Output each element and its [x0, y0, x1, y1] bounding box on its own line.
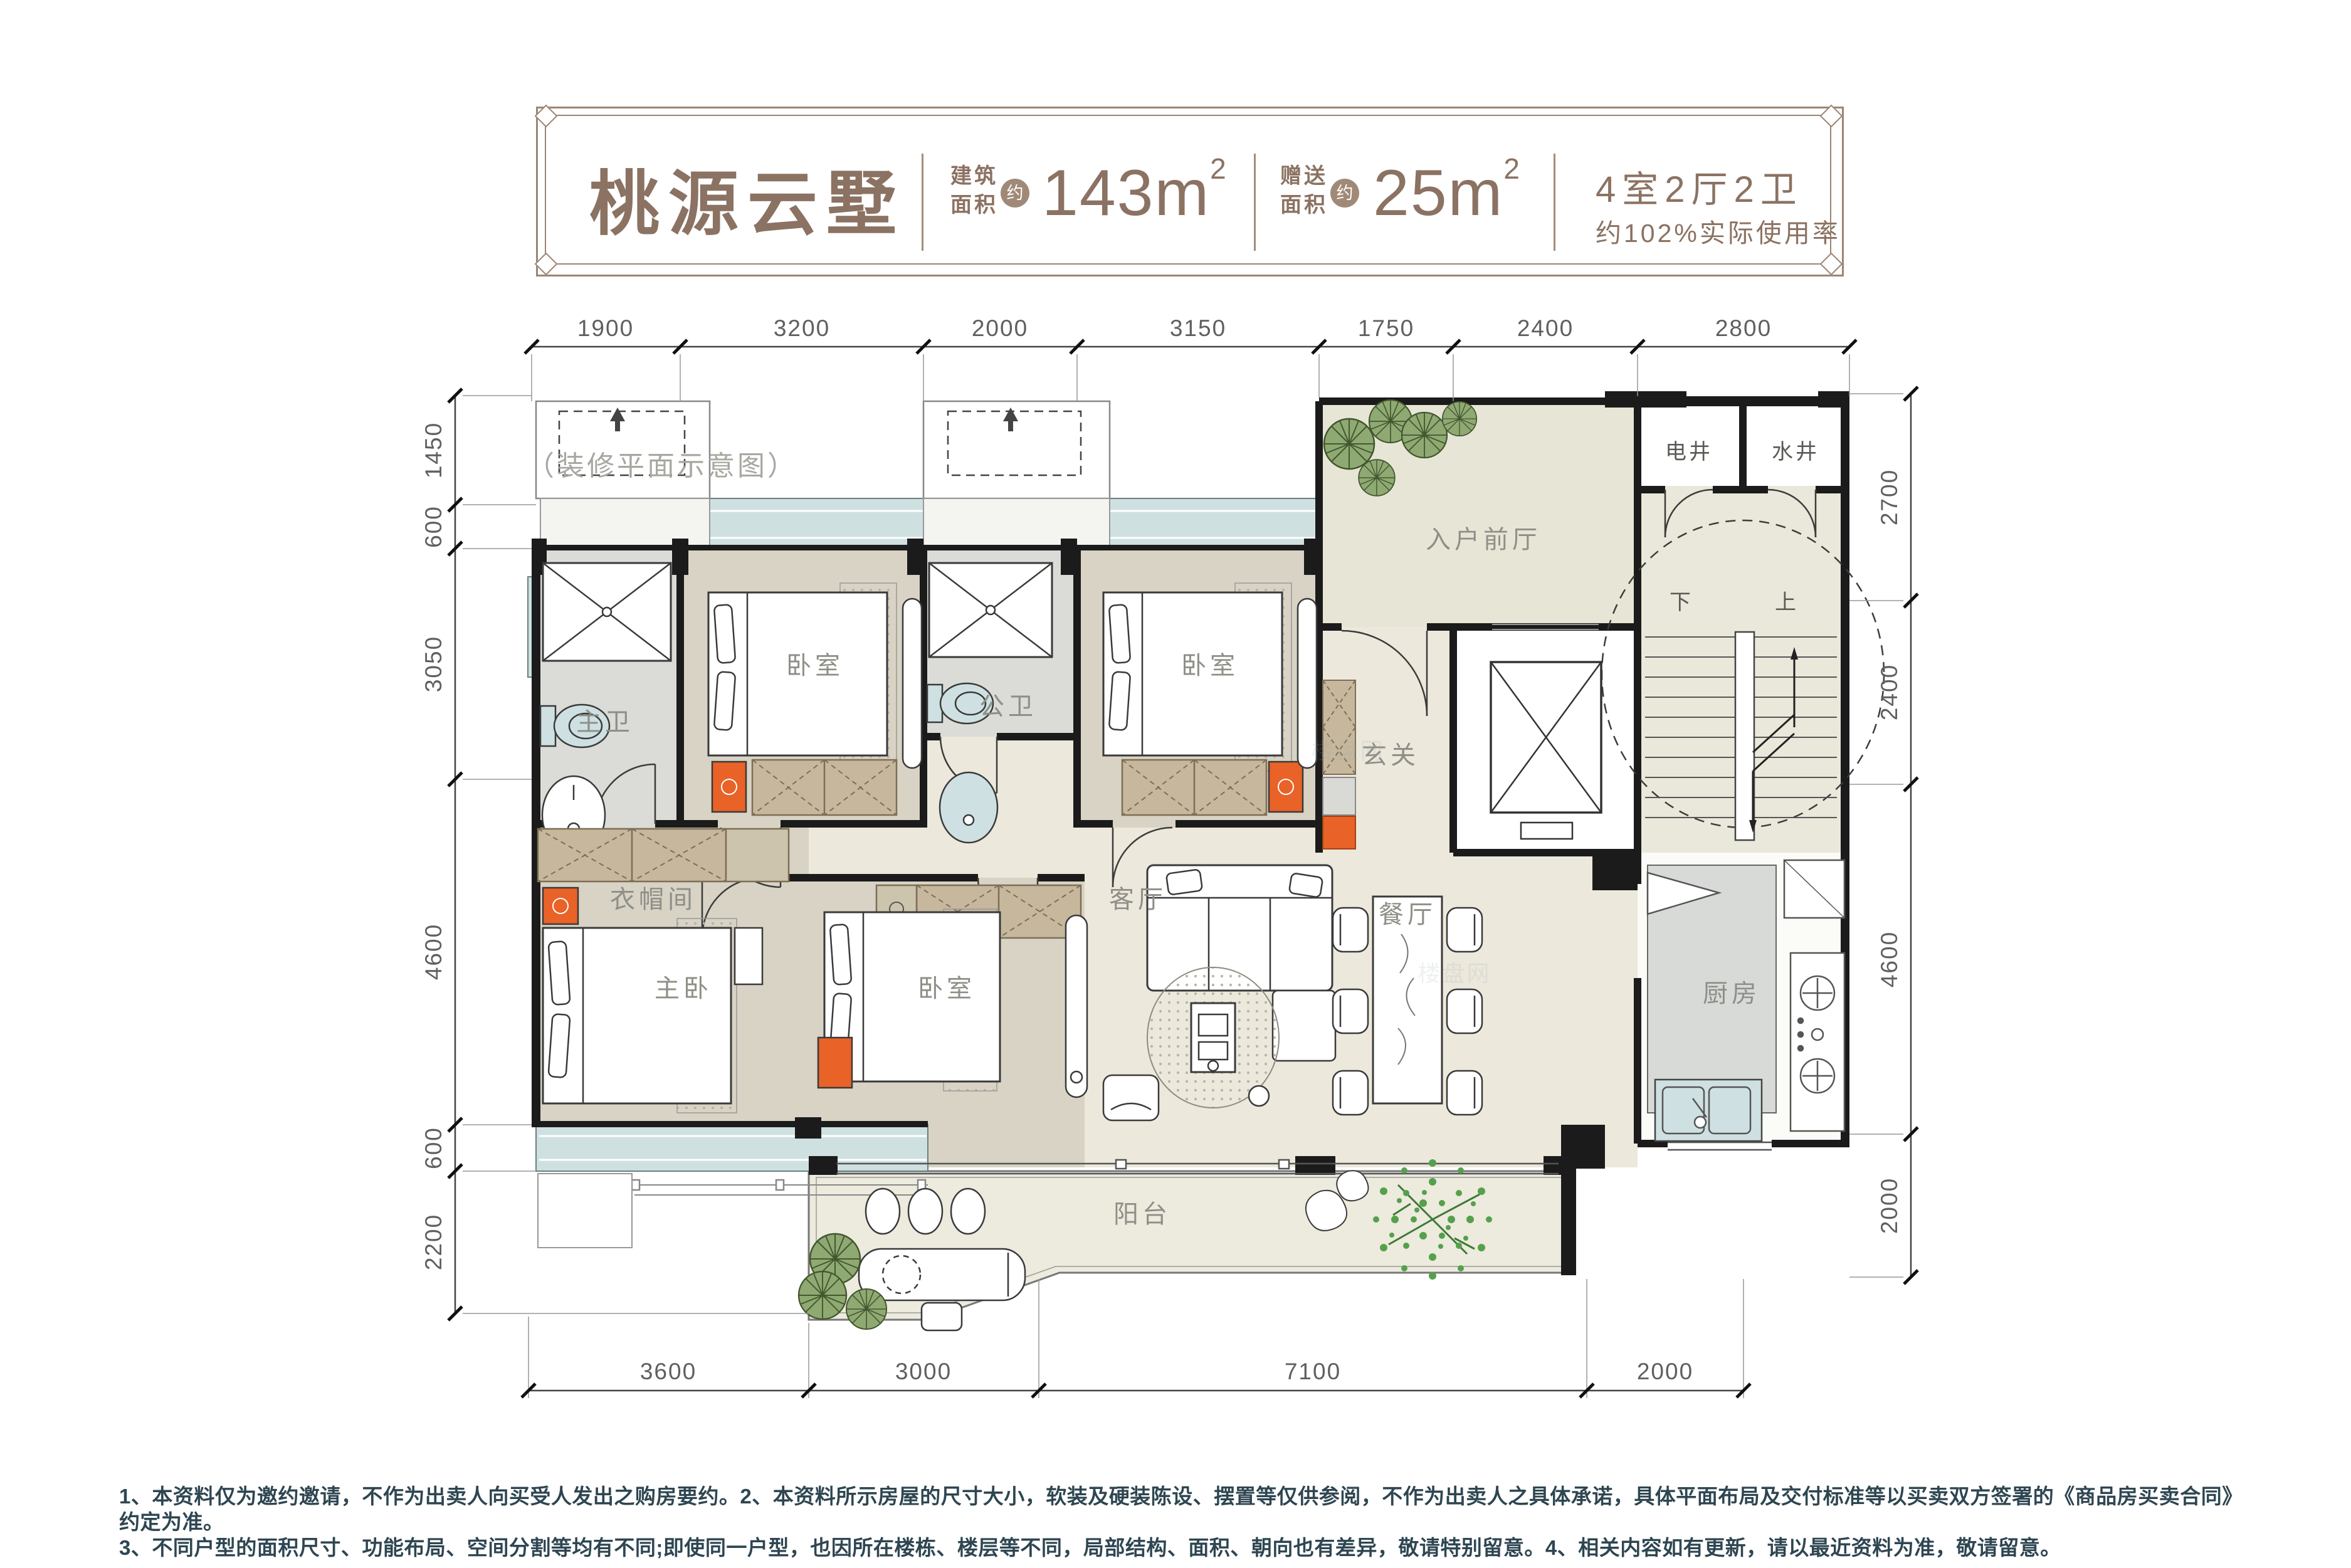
room-label-water-shaft: 水井: [1772, 440, 1819, 464]
hallway-cabinets: [1323, 680, 1355, 849]
dim-right-2: 4600: [1876, 931, 1902, 987]
dim-left-1: 600: [421, 505, 446, 548]
dim-right-1: 2400: [1876, 664, 1902, 720]
room-label-cloakroom: 衣帽间: [610, 886, 697, 913]
chair: [1333, 908, 1368, 952]
chair: [1333, 1071, 1368, 1115]
dim-top-4: 1750: [1358, 315, 1414, 341]
dim-bottom-1: 3000: [895, 1359, 952, 1384]
dim-bottom-2: 7100: [1285, 1359, 1341, 1384]
chair: [1333, 989, 1368, 1033]
rock-icon: [1337, 1171, 1368, 1201]
stair-up-label: 上: [1775, 591, 1799, 614]
chaise: [1273, 991, 1335, 1061]
floor-plan-svg: 1900 3200 2000 3150 1750 2400 2800 1450 …: [0, 0, 2351, 1568]
door-panel: [903, 599, 922, 768]
room-label-public-bath: 公卫: [979, 693, 1037, 720]
dim-left-0: 1450: [421, 422, 446, 478]
chair: [1447, 1071, 1482, 1115]
door-panel: [1066, 915, 1087, 1097]
dim-top-3: 3150: [1170, 315, 1226, 341]
disclaimer-line-2: 3、不同户型的面积尺寸、功能布局、空间分割等均有不同;即使同一户型，也因所在楼栋…: [119, 1535, 2263, 1560]
nightstand-orange: [818, 1038, 852, 1088]
room-label-bedroom-a: 卧室: [786, 652, 844, 680]
chair: [1447, 908, 1482, 952]
disclaimer-line-1: 1、本资料仅为邀约邀请，不作为出卖人向买受人发出之购房要约。2、本资料所示房屋的…: [119, 1483, 2263, 1535]
dim-top-2: 2000: [972, 315, 1028, 341]
side-table: [1249, 1086, 1269, 1106]
floorplan-page: 桃源云墅 建筑 面积 约 143m2 赠送 面积 约 25m2 4室2厅2卫 约…: [0, 0, 2351, 1568]
dim-left-5: 2200: [421, 1214, 446, 1270]
dim-top-5: 2400: [1517, 315, 1574, 341]
armchair: [1103, 1075, 1159, 1120]
toilet-icon: [540, 706, 555, 746]
stool: [908, 1189, 942, 1234]
room-label-electric-shaft: 电井: [1665, 440, 1713, 464]
room-label-kitchen: 厨房: [1703, 980, 1760, 1008]
lounge-chair: [922, 1303, 962, 1330]
dim-top-6: 2800: [1715, 315, 1772, 341]
chair: [1447, 989, 1482, 1033]
disclaimer: 1、本资料仅为邀约邀请，不作为出卖人向买受人发出之购房要约。2、本资料所示房屋的…: [119, 1483, 2263, 1560]
side-table: [735, 928, 762, 984]
nightstand-orange: [712, 762, 746, 812]
dim-left-4: 600: [421, 1127, 446, 1169]
watermark: 楼盘网: [1417, 960, 1491, 986]
stool: [866, 1189, 900, 1234]
room-label-entry-foyer: 入户前厅: [1426, 526, 1541, 554]
stair-down-label: 下: [1670, 591, 1693, 614]
nightstand-orange: [1269, 762, 1303, 812]
dining-furniture: [1333, 897, 1482, 1115]
dim-right-0: 2700: [1876, 469, 1902, 525]
room-label-living-room: 客厅: [1109, 886, 1167, 913]
dim-top-0: 1900: [577, 315, 634, 341]
room-label-master-bedroom: 主卧: [655, 975, 712, 1002]
watermark: 楼盘网: [1311, 738, 1384, 764]
room-label-master-bath: 主卫: [576, 708, 634, 736]
elevator: [1491, 662, 1601, 839]
balcony-table: [859, 1249, 1025, 1300]
dim-right-3: 2000: [1876, 1177, 1902, 1234]
plan-note: （装修平面示意图）: [527, 451, 797, 481]
dim-bottom-0: 3600: [640, 1359, 697, 1384]
dim-bottom-3: 2000: [1637, 1359, 1693, 1384]
nightstand-orange: [543, 888, 578, 924]
dim-left-2: 3050: [421, 636, 446, 692]
bedroom-a-furniture: [708, 583, 922, 815]
dim-top-1: 3200: [774, 315, 830, 341]
room-label-balcony: 阳台: [1113, 1201, 1171, 1228]
room-label-dining-room: 餐厅: [1379, 901, 1436, 929]
stool: [951, 1189, 985, 1234]
dim-left-3: 4600: [421, 923, 446, 980]
room-label-bedroom-c: 卧室: [918, 975, 976, 1002]
sink-icon: [940, 772, 997, 843]
bedroom-b-furniture: [1103, 583, 1317, 815]
room-label-bedroom-b: 卧室: [1181, 652, 1239, 680]
